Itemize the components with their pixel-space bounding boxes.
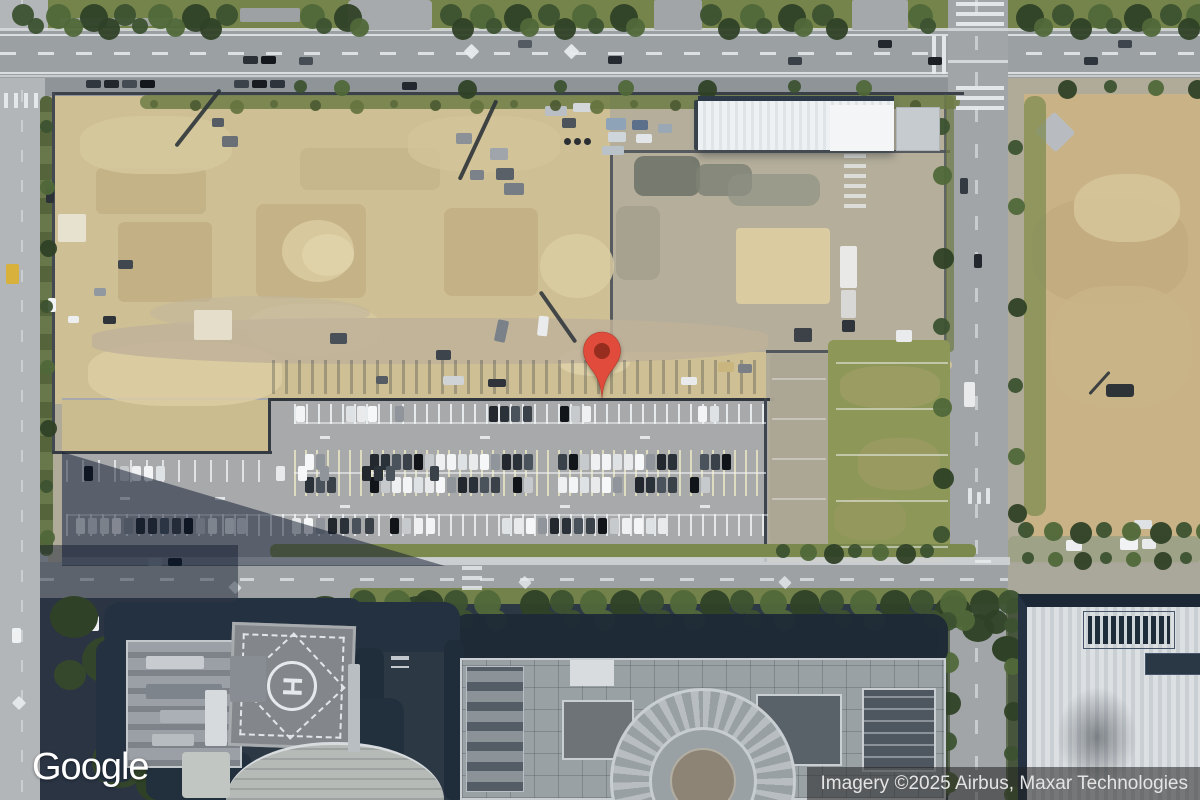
vehicle (681, 377, 697, 385)
tree (40, 420, 57, 437)
crosswalk (956, 2, 1004, 28)
tree (54, 660, 86, 690)
vehicle (470, 170, 484, 180)
vehicle (1106, 384, 1134, 397)
tree (40, 530, 55, 545)
tree (1122, 522, 1141, 541)
tree (1150, 522, 1172, 544)
tree (1004, 618, 1019, 633)
ground-detail (1008, 75, 1200, 77)
ground-detail (840, 366, 940, 408)
tree (550, 100, 561, 111)
parked-car (491, 454, 500, 470)
parked-car (524, 454, 533, 470)
vehicle (104, 80, 119, 88)
vehicle (234, 80, 249, 88)
tree (310, 100, 321, 111)
vehicle (841, 290, 856, 318)
vehicle (562, 118, 576, 128)
tree (510, 100, 518, 108)
tree (670, 100, 681, 111)
roof-wing (466, 666, 524, 792)
roof-section (830, 105, 894, 151)
vehicle (376, 376, 388, 384)
parked-car (562, 518, 571, 534)
parked-car (156, 466, 165, 481)
tree (776, 544, 790, 558)
vehicle (456, 133, 472, 144)
rooftop-detail (348, 664, 360, 752)
tree (270, 100, 278, 108)
tree (40, 240, 57, 257)
ground-detail (770, 354, 828, 544)
parked-car (365, 518, 374, 534)
tree (230, 100, 244, 114)
tree (40, 120, 53, 133)
vehicle (1084, 57, 1098, 65)
parked-car (613, 454, 622, 470)
map-canvas[interactable]: H Google Imagery ©2025 Airbus, Maxar Tec… (0, 0, 1200, 800)
vehicle (299, 57, 313, 65)
vehicle (960, 178, 968, 194)
tree (1106, 18, 1122, 34)
vehicle (270, 80, 285, 88)
tree (1180, 552, 1192, 564)
crosswalk (4, 93, 44, 108)
rooftop-detail (230, 656, 266, 702)
lane-line (975, 0, 978, 800)
parked-car (491, 477, 500, 493)
tree (1126, 552, 1141, 567)
parked-car (514, 518, 523, 534)
tree (588, 18, 604, 34)
parked-car (447, 454, 456, 470)
parked-car (602, 454, 611, 470)
tree (1154, 552, 1172, 570)
ground-detail (728, 174, 820, 206)
tree (788, 80, 801, 93)
vehicle (658, 124, 672, 133)
parked-car (480, 477, 489, 493)
ground-detail (896, 330, 912, 342)
ground-detail (764, 398, 767, 562)
parked-car (386, 466, 395, 481)
tree (334, 80, 350, 96)
parked-car (560, 406, 569, 422)
vehicle (118, 260, 133, 269)
vehicle (518, 40, 532, 48)
parked-car (276, 466, 285, 481)
vehicle (436, 350, 451, 360)
tree (350, 100, 364, 114)
rooftop-detail (205, 690, 227, 746)
vehicle (632, 120, 648, 130)
parked-car (480, 454, 489, 470)
vehicle (488, 379, 506, 387)
parked-car (658, 518, 667, 534)
roof-block (570, 660, 614, 686)
vehicle (222, 136, 238, 147)
parked-car (513, 477, 522, 493)
ground-detail (444, 208, 538, 296)
tree (64, 18, 83, 37)
tree (794, 18, 813, 37)
road-right (948, 0, 1008, 800)
ground-detail (736, 228, 830, 304)
vehicle (6, 264, 19, 284)
vehicle (1118, 40, 1132, 48)
parked-car (722, 454, 731, 470)
parked-car (580, 477, 589, 493)
vehicle (928, 57, 942, 65)
tree (190, 100, 201, 111)
parked-car (700, 454, 709, 470)
tree (1004, 746, 1019, 761)
vehicle (261, 56, 276, 64)
vehicle (504, 183, 524, 195)
parked-car (634, 518, 643, 534)
ground-detail (150, 296, 370, 330)
ground-detail (794, 328, 812, 342)
vehicle (140, 80, 155, 88)
parked-car (624, 454, 633, 470)
vehicle (402, 82, 417, 90)
tree (800, 544, 817, 561)
road-marking (968, 488, 972, 504)
parked-car (502, 518, 511, 534)
parked-car (571, 406, 580, 422)
tree (1148, 80, 1164, 96)
ground-detail (302, 234, 354, 276)
parked-car (368, 406, 377, 422)
tree (856, 80, 872, 96)
crosswalk (844, 154, 866, 210)
parked-car (402, 518, 411, 534)
tree (28, 18, 44, 34)
tree (1058, 80, 1077, 99)
parked-car (513, 454, 522, 470)
tree (756, 18, 772, 34)
road-marking (480, 436, 490, 439)
parked-car (296, 406, 305, 422)
vehicle (840, 246, 857, 288)
tree (316, 18, 332, 34)
vehicle (330, 333, 347, 344)
parked-car (414, 518, 423, 534)
vehicle (964, 382, 975, 407)
pin-inner-circle (594, 343, 610, 359)
parked-car (710, 406, 719, 422)
parked-car (646, 454, 655, 470)
parked-car (591, 454, 600, 470)
tree (1008, 504, 1027, 523)
road-marking (975, 560, 991, 563)
tree (452, 18, 474, 40)
parked-car (569, 477, 578, 493)
tree (718, 18, 740, 40)
road-marking (560, 505, 570, 508)
tree (390, 100, 398, 108)
rooftop-detail (146, 656, 204, 669)
vehicle (68, 316, 79, 323)
parked-car (668, 454, 677, 470)
tree (350, 18, 369, 37)
vehicle (606, 118, 626, 130)
parked-car (458, 454, 467, 470)
parked-car (500, 406, 509, 422)
parked-car (340, 518, 349, 534)
parked-car (346, 406, 355, 422)
ground-detail (946, 96, 954, 352)
vehicle (103, 316, 116, 324)
tree (872, 544, 889, 561)
parked-car (298, 466, 307, 481)
parked-car (502, 454, 511, 470)
parked-car (558, 454, 567, 470)
ground-detail (52, 451, 272, 454)
tree (933, 468, 954, 489)
tree (430, 100, 441, 111)
vehicle (608, 56, 622, 64)
parked-car (550, 518, 559, 534)
pin-body (584, 332, 621, 398)
tree (458, 80, 477, 99)
ground-detail (1008, 562, 1200, 598)
parked-car (701, 477, 710, 493)
parked-car (558, 477, 567, 493)
tree (98, 18, 120, 40)
parked-car (711, 454, 720, 470)
tree (470, 100, 484, 114)
tree (1018, 522, 1034, 538)
construction-site-extension (62, 400, 270, 454)
ground-detail (240, 8, 300, 22)
parked-car (635, 454, 644, 470)
parked-car (586, 518, 595, 534)
parked-car (690, 477, 699, 493)
tree (1008, 378, 1023, 393)
tree (626, 18, 645, 37)
tree (40, 180, 55, 195)
parked-car (668, 477, 677, 493)
parked-car (469, 477, 478, 493)
parked-car (414, 477, 423, 493)
tree (933, 526, 950, 543)
parked-car (430, 466, 439, 481)
tree (954, 610, 975, 631)
tree (554, 80, 567, 93)
parked-car (635, 477, 644, 493)
vehicle (243, 56, 258, 64)
parked-car (569, 454, 578, 470)
tree (630, 100, 638, 108)
vehicle (490, 148, 508, 160)
vehicle (537, 316, 549, 337)
google-logo[interactable]: Google (32, 746, 149, 789)
crosswalk (932, 36, 952, 74)
ground-detail (852, 0, 908, 30)
ground-detail (80, 116, 232, 174)
roof-annex (896, 107, 940, 151)
road-marking (977, 492, 981, 504)
vehicle (496, 168, 514, 180)
tree (1074, 552, 1092, 570)
tree (554, 18, 576, 40)
crosswalk (956, 86, 1004, 110)
tree (40, 360, 55, 375)
tree (1070, 18, 1092, 40)
tree (150, 100, 158, 108)
tree (824, 544, 844, 564)
tree (1070, 522, 1092, 544)
road-marking (640, 436, 650, 439)
parked-car (646, 518, 655, 534)
vehicle (602, 146, 624, 155)
road-marking (700, 505, 710, 508)
tree (920, 18, 936, 34)
tree (933, 318, 950, 335)
helipad-h-label: H (276, 676, 308, 697)
parked-car (580, 454, 589, 470)
parked-car (447, 477, 456, 493)
tree (294, 80, 307, 93)
tree (920, 544, 934, 558)
parked-car (646, 477, 655, 493)
parked-car (613, 477, 622, 493)
parked-car (390, 518, 399, 534)
parked-car (320, 466, 329, 481)
road-marking (340, 505, 350, 508)
ground-detail (0, 75, 948, 77)
vehicle (842, 320, 855, 332)
vehicle (608, 132, 626, 142)
tree (1044, 522, 1063, 541)
parked-car (538, 518, 547, 534)
lane-line (0, 52, 1200, 55)
parked-car (469, 454, 478, 470)
tree (1104, 80, 1117, 93)
vehicle (443, 376, 464, 385)
tree (1142, 18, 1161, 37)
ground-detail (268, 398, 774, 401)
parked-car (524, 477, 533, 493)
tree (848, 544, 862, 558)
ground-detail (634, 156, 700, 196)
tree (166, 18, 185, 37)
tree (933, 166, 952, 185)
tree (1008, 198, 1025, 215)
tree (896, 544, 916, 564)
parked-car (414, 454, 423, 470)
parked-car (374, 466, 383, 481)
warehouse-building-north (698, 96, 894, 150)
vehicle (12, 628, 21, 643)
parked-car (582, 406, 591, 422)
vehicle (788, 57, 802, 65)
parked-car (591, 477, 600, 493)
lane-line (21, 0, 23, 800)
ground-detail (1074, 174, 1180, 242)
vehicle (86, 80, 101, 88)
tree (590, 100, 604, 114)
parked-car (362, 466, 371, 481)
ground-detail (540, 234, 614, 298)
tree (1178, 18, 1200, 40)
location-pin-icon[interactable] (581, 331, 623, 403)
rooftop-detail (152, 734, 194, 746)
ground-detail (1024, 96, 1046, 516)
vehicle (94, 288, 106, 296)
vehicle (584, 138, 591, 145)
parked-car (489, 406, 498, 422)
rotunda-atrium (610, 688, 796, 800)
vehicle (573, 103, 591, 112)
building-shadow (40, 545, 238, 598)
vehicle (212, 118, 224, 127)
parked-car (523, 406, 532, 422)
rooftop-hvac-units (1083, 611, 1175, 649)
rooftop-detail (182, 752, 230, 798)
parked-car (458, 477, 467, 493)
tree (520, 18, 539, 37)
ground-detail (858, 438, 940, 490)
parked-car (598, 518, 607, 534)
vehicle (252, 80, 267, 88)
tree (1034, 18, 1053, 37)
tree (1048, 552, 1063, 567)
vehicle (122, 80, 137, 88)
tree (200, 18, 222, 40)
ground-detail (96, 168, 206, 214)
tree (132, 18, 148, 34)
parked-car (403, 454, 412, 470)
tree (1008, 298, 1027, 317)
imagery-attribution: Imagery ©2025 Airbus, Maxar Technologies (807, 767, 1200, 800)
road-marking (320, 436, 330, 439)
ground-detail (616, 206, 660, 280)
parked-car (511, 406, 520, 422)
parked-car (426, 518, 435, 534)
parked-car (403, 477, 412, 493)
ground-detail (52, 92, 55, 454)
vehicle (718, 362, 734, 372)
road-main (0, 30, 1200, 78)
parked-car (610, 518, 619, 534)
parked-car (622, 518, 631, 534)
ground-detail (654, 0, 702, 30)
tree (1096, 522, 1112, 538)
parked-car (657, 454, 666, 470)
tree (1188, 80, 1200, 99)
parked-car (395, 406, 404, 422)
tree (50, 596, 98, 638)
vehicle (878, 40, 892, 48)
tree (40, 300, 53, 313)
tree (1008, 140, 1023, 155)
vehicle (636, 134, 652, 143)
parked-car (352, 518, 361, 534)
road-marking (948, 60, 1008, 63)
tree (933, 398, 952, 417)
ground-detail (58, 214, 86, 242)
roof-block (862, 688, 936, 772)
tree (486, 18, 502, 34)
road-marking (986, 488, 990, 504)
parked-car (357, 406, 366, 422)
tree (1008, 448, 1025, 465)
tree (618, 80, 634, 96)
tree (1176, 522, 1192, 538)
